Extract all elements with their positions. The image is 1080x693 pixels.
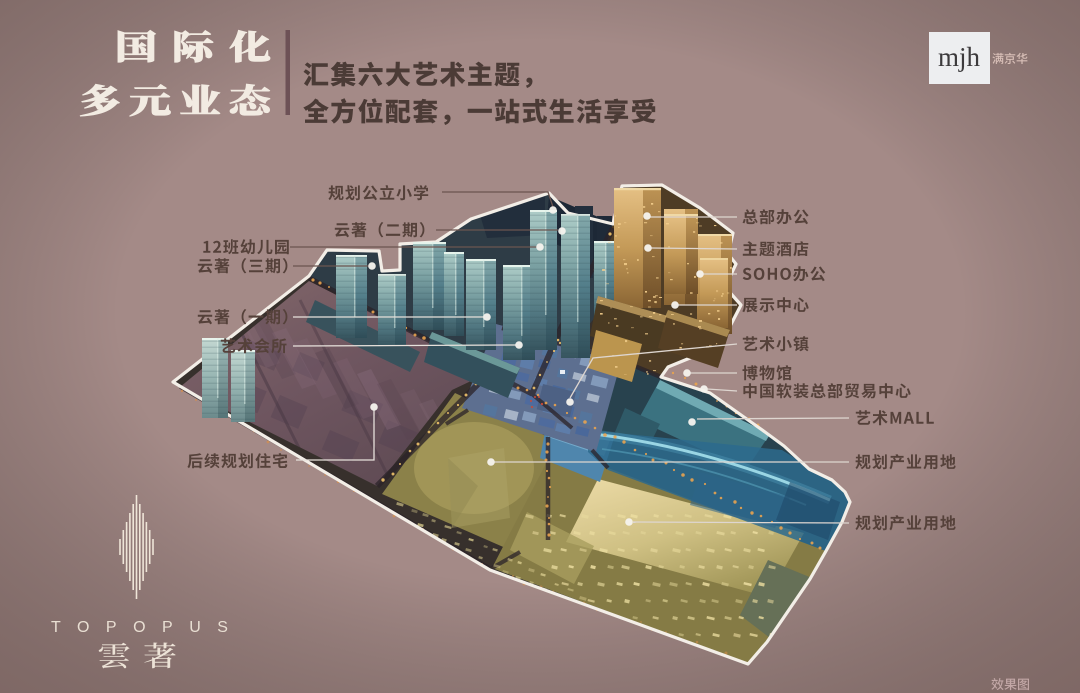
svg-text:mjh: mjh xyxy=(938,42,981,72)
svg-text:TOPOPUS: TOPOPUS xyxy=(51,619,244,636)
